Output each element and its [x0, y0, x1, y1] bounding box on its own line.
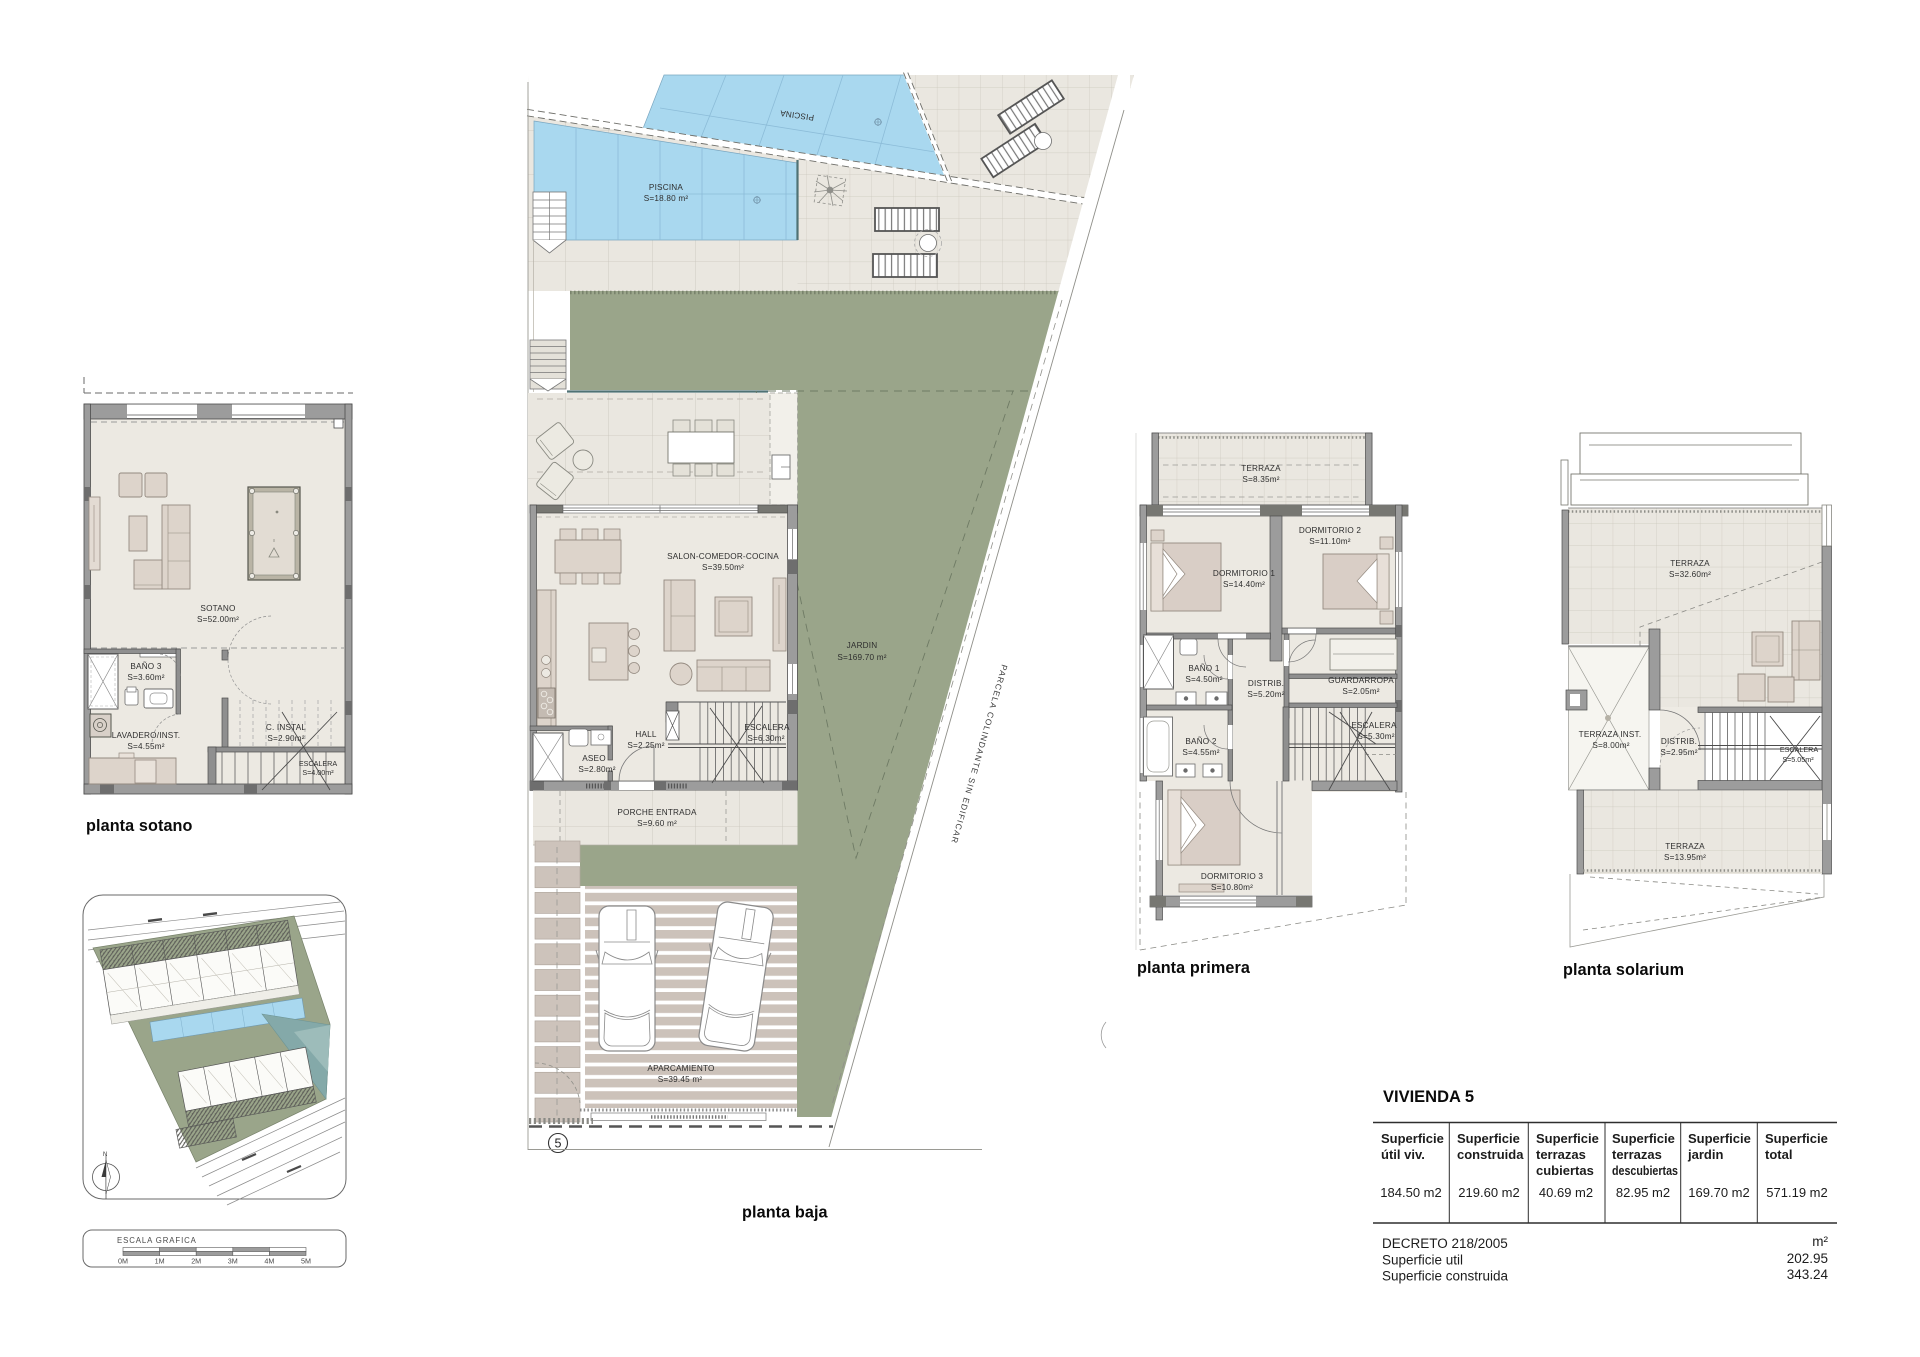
svg-text:construida: construida	[1457, 1147, 1524, 1162]
svg-text:ESCALERA: ESCALERA	[1351, 721, 1397, 730]
svg-text:HALL: HALL	[635, 730, 657, 739]
svg-text:S=18.80 m²: S=18.80 m²	[644, 194, 689, 203]
svg-text:Superficie construida: Superficie construida	[1382, 1269, 1509, 1284]
svg-text:S=169.70 m²: S=169.70 m²	[837, 653, 886, 662]
svg-text:jardin: jardin	[1687, 1147, 1723, 1162]
svg-text:m²: m²	[1812, 1234, 1828, 1249]
svg-text:DORMITORIO 2: DORMITORIO 2	[1299, 526, 1362, 535]
svg-text:VIVIENDA 5: VIVIENDA 5	[1383, 1088, 1474, 1106]
svg-text:S=2.05m²: S=2.05m²	[1342, 687, 1379, 696]
svg-text:4M: 4M	[264, 1257, 274, 1266]
svg-text:S=2.90m²: S=2.90m²	[267, 734, 304, 743]
svg-text:S=8.00m²: S=8.00m²	[1592, 741, 1629, 750]
svg-text:DISTRIB.: DISTRIB.	[1661, 737, 1697, 746]
svg-text:S=10.80m²: S=10.80m²	[1211, 883, 1253, 892]
svg-text:5M: 5M	[301, 1257, 311, 1266]
svg-text:Superficie: Superficie	[1381, 1131, 1444, 1146]
svg-text:PORCHE ENTRADA: PORCHE ENTRADA	[617, 808, 697, 817]
svg-text:S=4.00m²: S=4.00m²	[302, 768, 334, 777]
svg-text:S=4.55m²: S=4.55m²	[127, 742, 164, 751]
svg-text:ESCALERA: ESCALERA	[744, 723, 790, 732]
svg-text:cubiertas: cubiertas	[1536, 1163, 1594, 1178]
svg-text:169.70 m2: 169.70 m2	[1688, 1185, 1749, 1200]
svg-text:ESCALERA: ESCALERA	[1780, 745, 1819, 754]
svg-text:DORMITORIO 3: DORMITORIO 3	[1201, 872, 1264, 881]
svg-text:Superficie: Superficie	[1457, 1131, 1520, 1146]
svg-text:S=39.50m²: S=39.50m²	[702, 563, 744, 572]
svg-text:343.24: 343.24	[1787, 1267, 1829, 1282]
svg-text:S=14.40m²: S=14.40m²	[1223, 580, 1265, 589]
svg-text:S=13.95m²: S=13.95m²	[1664, 853, 1706, 862]
svg-text:planta solarium: planta solarium	[1563, 961, 1684, 979]
svg-text:BAÑO 3: BAÑO 3	[130, 661, 161, 671]
svg-text:S=5.30m²: S=5.30m²	[1357, 732, 1394, 741]
svg-text:DISTRIB.: DISTRIB.	[1248, 679, 1284, 688]
svg-text:LAVADERO/INST.: LAVADERO/INST.	[112, 731, 180, 740]
svg-text:ESCALERA: ESCALERA	[299, 759, 338, 768]
svg-text:C. INSTAL: C. INSTAL	[266, 723, 307, 732]
svg-text:terrazas: terrazas	[1536, 1147, 1586, 1162]
svg-text:TERRAZA INST.: TERRAZA INST.	[1579, 730, 1642, 739]
svg-text:útil viv.: útil viv.	[1381, 1147, 1425, 1162]
svg-text:SOTANO: SOTANO	[200, 604, 235, 613]
svg-text:571.19 m2: 571.19 m2	[1766, 1185, 1827, 1200]
svg-text:3M: 3M	[228, 1257, 238, 1266]
svg-text:S=9.60 m²: S=9.60 m²	[637, 819, 677, 828]
svg-text:GUARDARROPA: GUARDARROPA	[1328, 676, 1394, 685]
svg-text:descubiertas: descubiertas	[1612, 1163, 1678, 1178]
svg-text:Superficie: Superficie	[1765, 1131, 1828, 1146]
svg-text:219.60 m2: 219.60 m2	[1458, 1185, 1519, 1200]
svg-text:Superficie: Superficie	[1536, 1131, 1599, 1146]
svg-text:terrazas: terrazas	[1612, 1147, 1662, 1162]
svg-text:TERRAZA: TERRAZA	[1241, 464, 1281, 473]
svg-text:PISCINA: PISCINA	[649, 183, 683, 192]
svg-text:TERRAZA: TERRAZA	[1665, 842, 1705, 851]
svg-text:S=5.20m²: S=5.20m²	[1247, 690, 1284, 699]
svg-text:ASEO: ASEO	[582, 754, 606, 763]
svg-text:S=11.10m²: S=11.10m²	[1309, 537, 1351, 546]
svg-text:0M: 0M	[118, 1257, 128, 1266]
svg-text:82.95 m2: 82.95 m2	[1616, 1185, 1670, 1200]
svg-text:Superficie: Superficie	[1688, 1131, 1751, 1146]
svg-text:Superficie: Superficie	[1612, 1131, 1675, 1146]
svg-text:N: N	[103, 1152, 107, 1158]
svg-text:SALON-COMEDOR-COCINA: SALON-COMEDOR-COCINA	[667, 552, 779, 561]
svg-text:S=2.80m²: S=2.80m²	[578, 765, 615, 774]
svg-text:S=5.05m²: S=5.05m²	[1782, 755, 1814, 764]
svg-text:planta sotano: planta sotano	[86, 817, 193, 835]
svg-text:S=8.35m²: S=8.35m²	[1242, 475, 1279, 484]
svg-text:ESCALA GRAFICA: ESCALA GRAFICA	[117, 1236, 197, 1245]
svg-text:184.50 m2: 184.50 m2	[1380, 1185, 1441, 1200]
svg-text:S=2.95m²: S=2.95m²	[1660, 748, 1697, 757]
svg-text:BAÑO 2: BAÑO 2	[1185, 736, 1216, 746]
svg-text:202.95: 202.95	[1787, 1251, 1828, 1266]
svg-text:S=6.30m²: S=6.30m²	[747, 734, 784, 743]
svg-text:planta baja: planta baja	[742, 1204, 829, 1222]
svg-text:planta primera: planta primera	[1137, 959, 1251, 977]
svg-text:2M: 2M	[191, 1257, 201, 1266]
svg-text:DECRETO 218/2005: DECRETO 218/2005	[1382, 1236, 1508, 1251]
svg-text:S=4.55m²: S=4.55m²	[1182, 748, 1219, 757]
svg-text:S=52.00m²: S=52.00m²	[197, 615, 239, 624]
svg-text:1M: 1M	[155, 1257, 165, 1266]
svg-text:APARCAMIENTO: APARCAMIENTO	[647, 1064, 714, 1073]
svg-text:JARDIN: JARDIN	[847, 641, 878, 650]
svg-text:DORMITORIO 1: DORMITORIO 1	[1213, 569, 1276, 578]
svg-text:40.69 m2: 40.69 m2	[1539, 1185, 1593, 1200]
svg-text:S=32.60m²: S=32.60m²	[1669, 570, 1711, 579]
svg-text:S=3.60m²: S=3.60m²	[127, 673, 164, 682]
svg-text:5: 5	[555, 1137, 562, 1151]
svg-text:total: total	[1765, 1147, 1792, 1162]
svg-text:TERRAZA: TERRAZA	[1670, 559, 1710, 568]
svg-text:S=2.25m²: S=2.25m²	[627, 741, 664, 750]
svg-text:BAÑO 1: BAÑO 1	[1188, 663, 1219, 673]
svg-text:S=39.45 m²: S=39.45 m²	[658, 1075, 703, 1084]
svg-text:Superficie util: Superficie util	[1382, 1253, 1463, 1268]
